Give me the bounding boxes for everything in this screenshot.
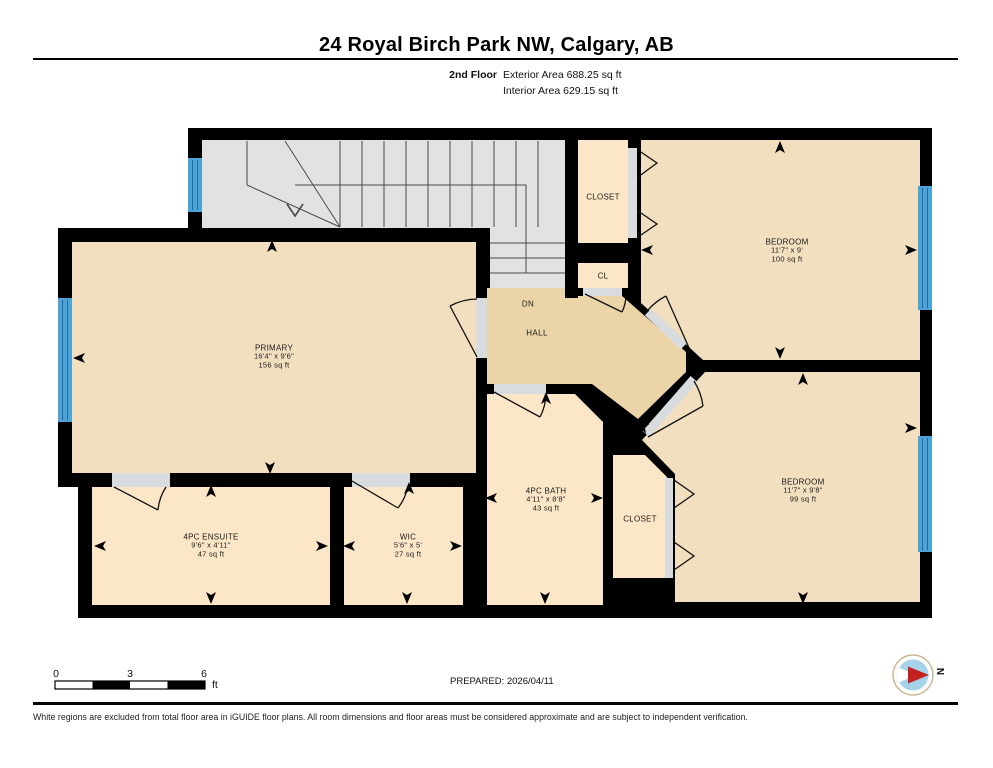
cl-wall-stub bbox=[565, 288, 578, 298]
prepared-date: PREPARED: 2026/04/11 bbox=[450, 676, 554, 687]
bedroom2-window bbox=[918, 436, 932, 552]
scale-unit: ft bbox=[212, 679, 218, 691]
hall-label: HALL bbox=[526, 328, 548, 337]
ensuite-label: 4PC ENSUITE9'6" x 4'11"47 sq ft bbox=[183, 532, 238, 559]
scale-bar bbox=[55, 681, 205, 689]
primary-label: PRIMARY16'4" x 9'6"156 sq ft bbox=[254, 343, 294, 370]
disclaimer-text: White regions are excluded from total fl… bbox=[33, 712, 748, 722]
primary-window bbox=[58, 298, 72, 422]
scale-tick-6: 6 bbox=[201, 668, 207, 680]
floor-plan-drawing bbox=[0, 0, 993, 768]
scale-tick-0: 0 bbox=[53, 668, 59, 680]
closet-top-label: CLOSET bbox=[586, 192, 620, 201]
closet-mid-label: CLOSET bbox=[623, 514, 657, 523]
floorplan-page: 24 Royal Birch Park NW, Calgary, AB 2nd … bbox=[0, 0, 993, 768]
bedroom2-label: BEDROOM11'7" x 9'8"99 sq ft bbox=[781, 477, 824, 504]
compass-icon bbox=[893, 655, 933, 695]
compass-north-label: N bbox=[934, 668, 945, 675]
bath-label: 4PC BATH4'11" x 8'8"43 sq ft bbox=[526, 486, 567, 513]
bedroom1-window bbox=[918, 186, 932, 310]
stairwell-window bbox=[188, 158, 202, 212]
stairs-dn-label: DN bbox=[522, 299, 534, 308]
footer-divider bbox=[33, 702, 958, 705]
wic-label: WIC5'6" x 5'27 sq ft bbox=[394, 532, 422, 559]
bedroom1-label: BEDROOM11'7" x 9'100 sq ft bbox=[765, 237, 808, 264]
cl-label: CL bbox=[598, 271, 609, 280]
scale-tick-3: 3 bbox=[127, 668, 133, 680]
